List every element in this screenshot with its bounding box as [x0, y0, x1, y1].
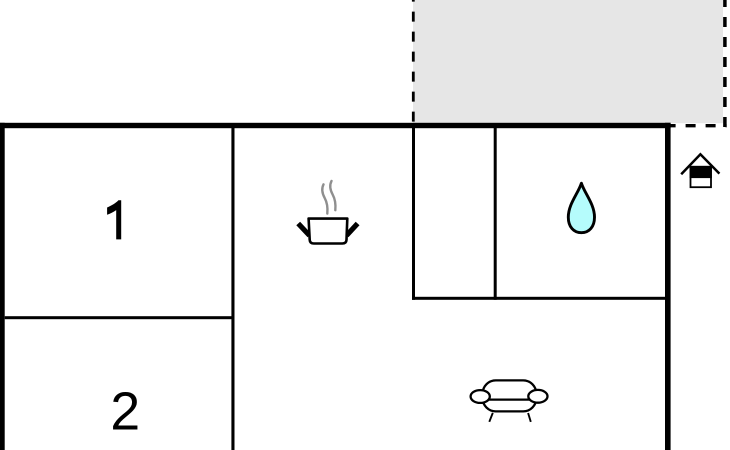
svg-text:2: 2	[110, 382, 140, 441]
